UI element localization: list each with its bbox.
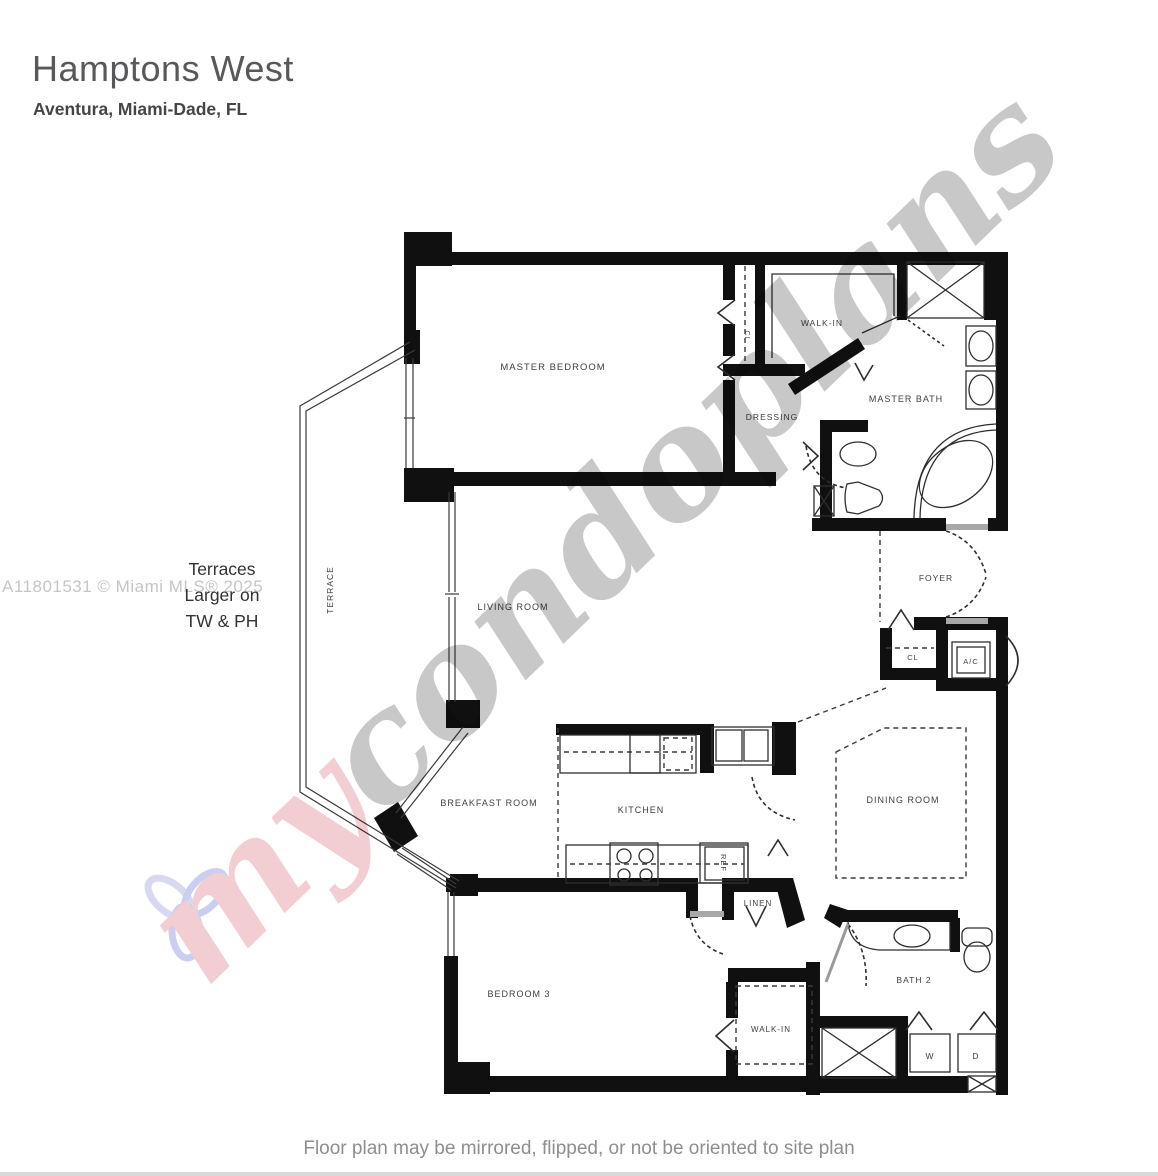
bottom-divider [0, 1172, 1158, 1176]
label-breakfast-room: BREAKFAST ROOM [440, 798, 537, 808]
label-bath2: BATH 2 [896, 975, 931, 985]
label-linen: LINEN [744, 899, 773, 908]
floor-plan-page: Hamptons West Aventura, Miami-Dade, FL A… [0, 0, 1158, 1176]
label-walk-in-bedroom3: WALK-IN [751, 1025, 791, 1034]
label-bedroom3: BEDROOM 3 [487, 989, 550, 999]
label-kitchen: KITCHEN [618, 805, 665, 815]
label-dining-room: DINING ROOM [867, 795, 940, 805]
label-ref: REF [719, 854, 728, 872]
label-terrace: TERRACE [325, 566, 335, 614]
watermark-text: mycondoplans [108, 53, 1096, 1016]
label-master-bath: MASTER BATH [869, 394, 943, 404]
watermark: mycondoplans [108, 53, 1096, 1016]
label-closet-foyer: CL [907, 653, 919, 662]
disclaimer-text: Floor plan may be mirrored, flipped, or … [0, 1138, 1158, 1160]
label-master-bedroom: MASTER BEDROOM [500, 362, 605, 373]
floor-plan-svg: MASTER BEDROOM WALK-IN DRESSING MASTER B… [0, 0, 1158, 1176]
label-washer: W [925, 1051, 934, 1061]
label-foyer: FOYER [919, 573, 953, 583]
label-ac: A/C [963, 657, 979, 666]
label-dryer: D [972, 1051, 979, 1061]
